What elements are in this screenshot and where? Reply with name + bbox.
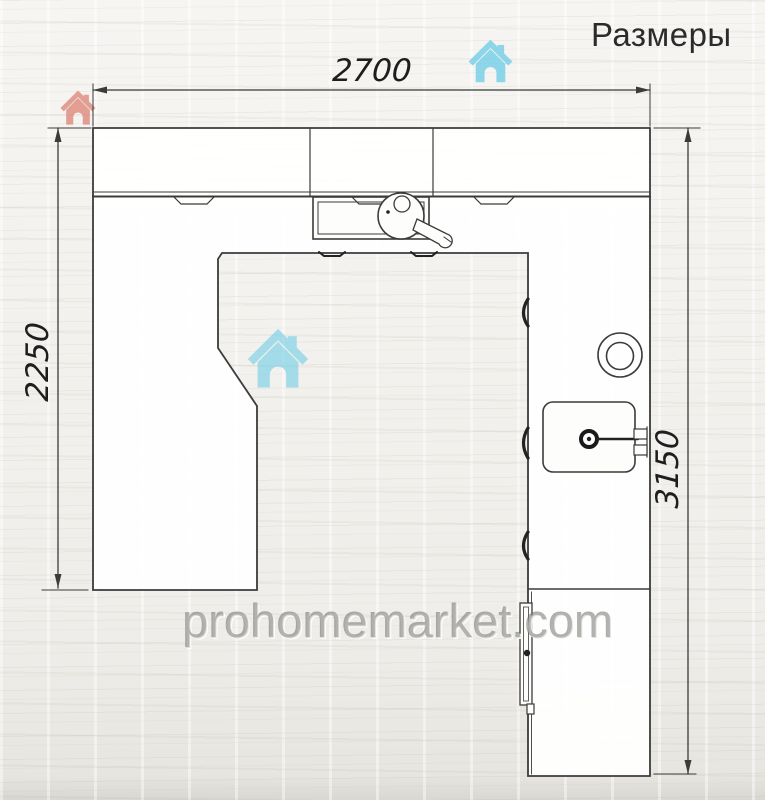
watermark-text: prohomemarket.com [183,594,614,649]
page-title: Размеры [591,16,732,54]
dimension-label-top-width: 2700 [311,54,433,90]
sink [543,402,647,472]
dimension-top [93,84,650,126]
dimension-label-left-height: 2250 [21,321,57,402]
base-front-handles [319,252,528,559]
screenshot-root: Размеры 2700 2250 3150 prohomemarket.com [0,0,765,800]
kitchen-plan-drawing [0,0,765,800]
dimension-label-right-height: 3150 [651,428,687,509]
